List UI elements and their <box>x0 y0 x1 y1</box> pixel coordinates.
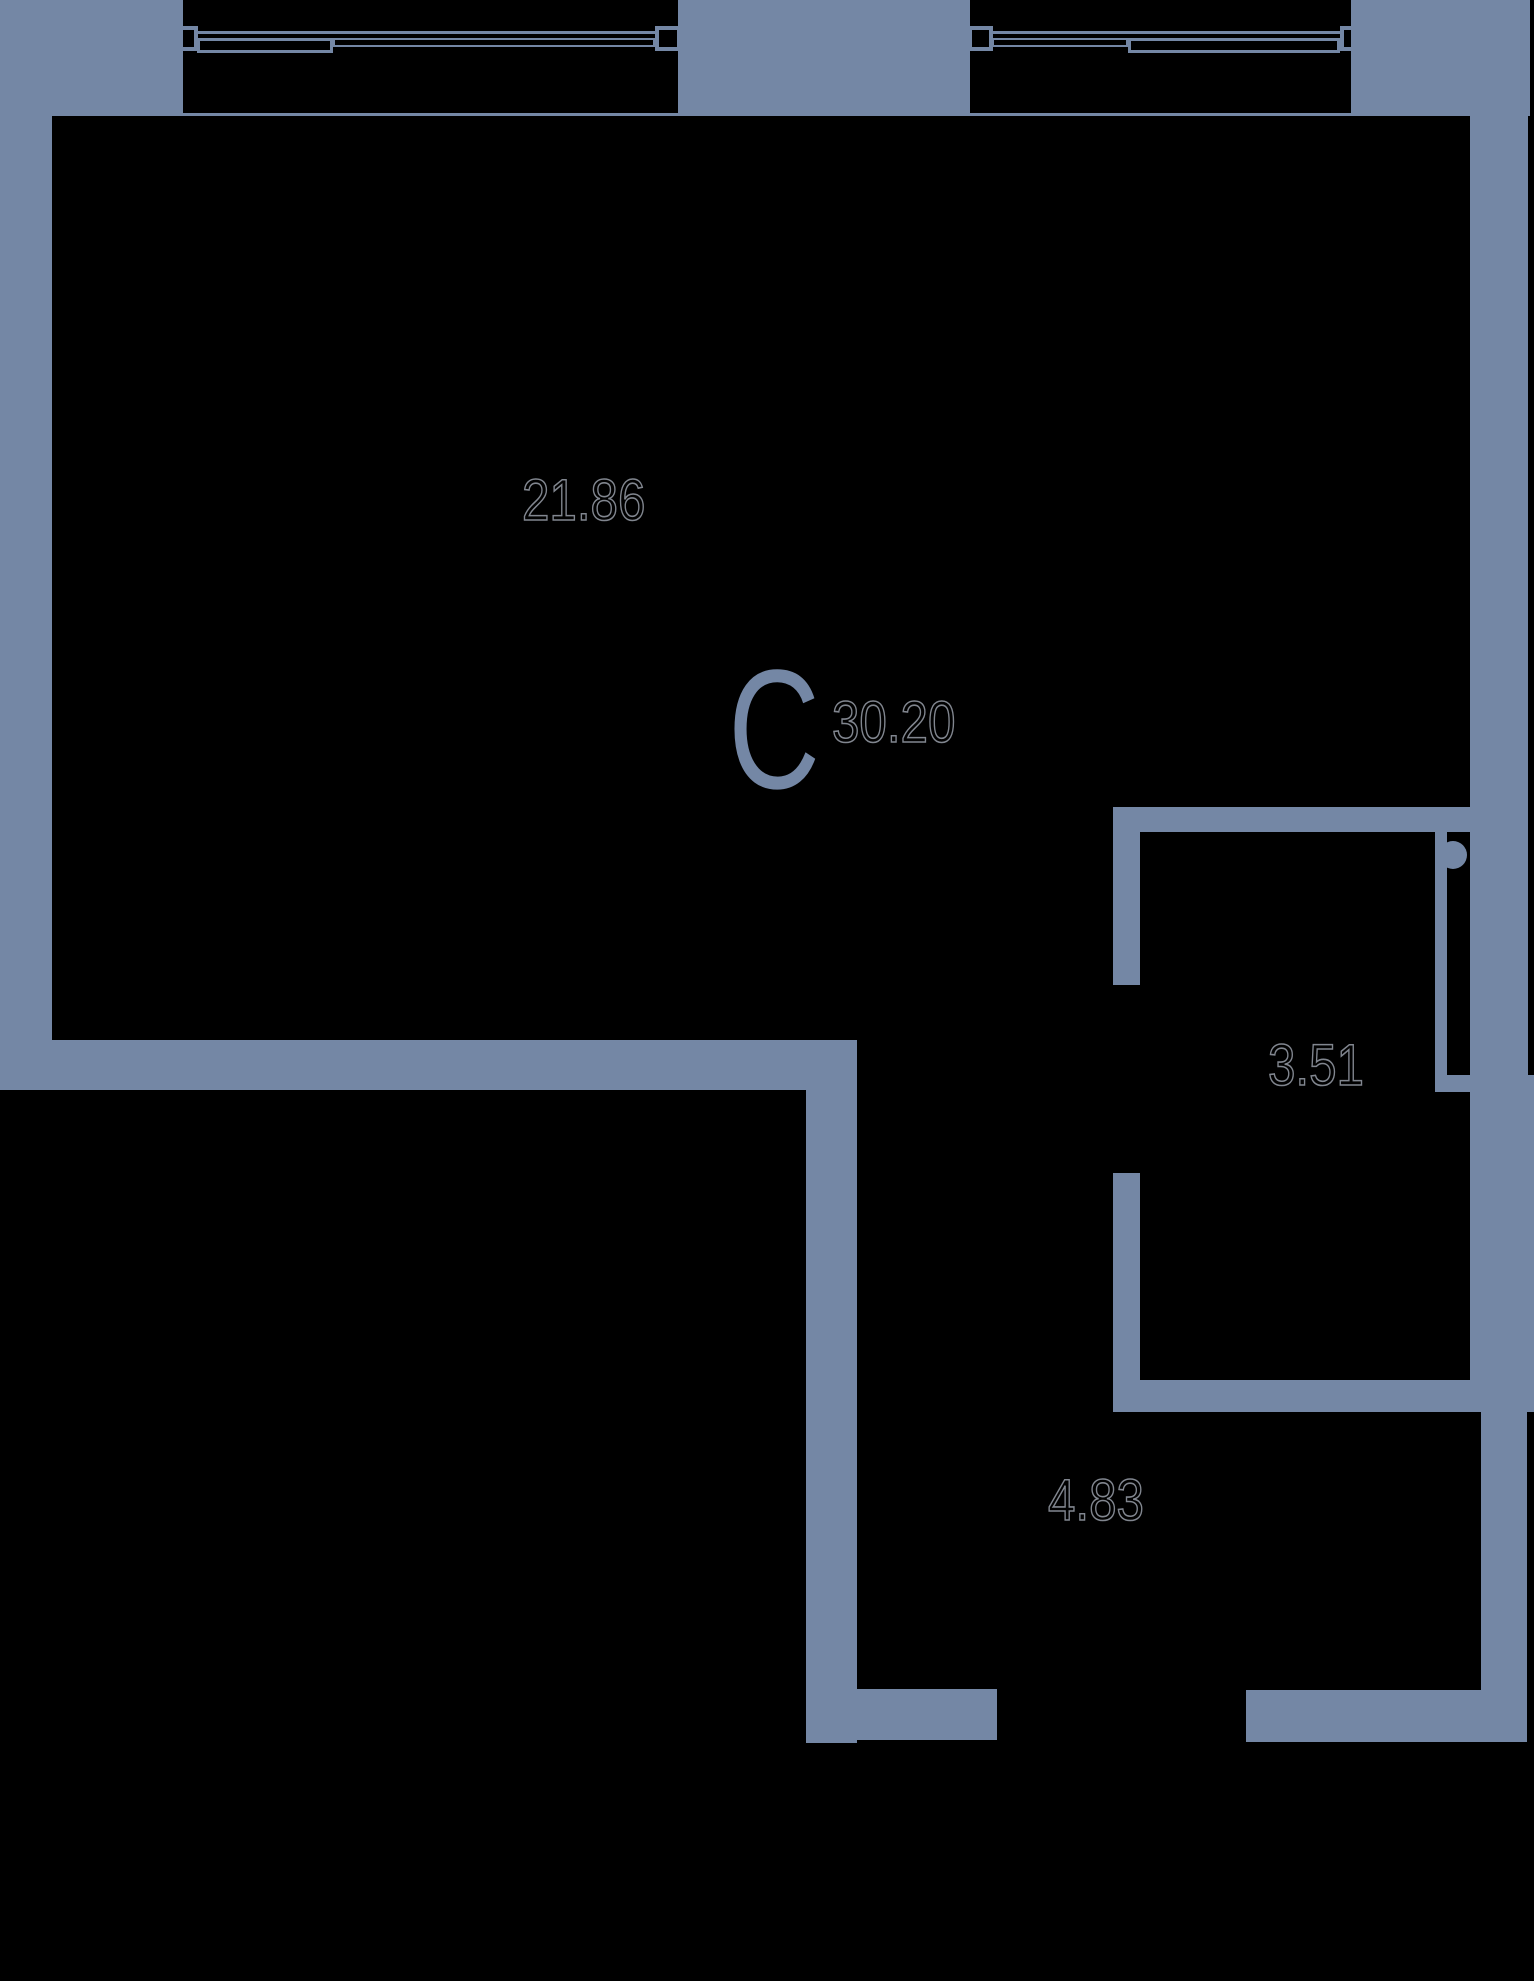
wall-mid-horizontal <box>0 1040 857 1090</box>
wall-top-center-pier <box>678 0 970 115</box>
window-1-left-jamb-icon <box>173 26 198 51</box>
room-label-total: 30.20 <box>832 694 955 752</box>
window-2-frame-line <box>992 31 1340 34</box>
wall-bathroom-top <box>1113 807 1470 832</box>
wall-top-inner-face-line <box>0 113 1530 116</box>
vent-duct-icon <box>1439 841 1467 869</box>
window-1-right-jamb-icon <box>655 26 681 51</box>
shaft-partition <box>1435 832 1447 1075</box>
window-1-rail <box>333 38 655 47</box>
room-label-living: 21.86 <box>522 472 645 530</box>
window-2-sash <box>1128 38 1340 53</box>
wall-right-mid <box>1470 1075 1534 1412</box>
wall-top-right-block <box>1351 0 1530 115</box>
room-label-bathroom: 3.51 <box>1268 1037 1364 1095</box>
window-2-rail <box>992 38 1128 47</box>
window-1-sash <box>197 38 333 53</box>
wall-bathroom-left-upper <box>1113 807 1140 985</box>
wall-top-left-block <box>0 0 183 115</box>
window-2-left-jamb-icon <box>968 26 993 51</box>
wall-bottom-left-band <box>857 1689 997 1740</box>
north-indicator: C <box>728 645 820 815</box>
wall-right-lower <box>1481 1412 1527 1742</box>
window-1-frame-line <box>197 31 655 34</box>
wall-right-upper <box>1470 115 1528 1075</box>
floor-plan: 21.86 C 30.20 3.51 4.83 <box>0 0 1534 1981</box>
window-2-right-jamb-icon <box>1340 26 1365 51</box>
wall-bathroom-bottom <box>1113 1380 1470 1412</box>
room-label-hall: 4.83 <box>1048 1472 1144 1530</box>
wall-lower-left-vertical <box>806 1090 857 1743</box>
shaft-bottom-cap <box>1435 1075 1470 1092</box>
wall-left-exterior <box>0 115 52 1040</box>
wall-bathroom-left-lower <box>1113 1173 1140 1412</box>
